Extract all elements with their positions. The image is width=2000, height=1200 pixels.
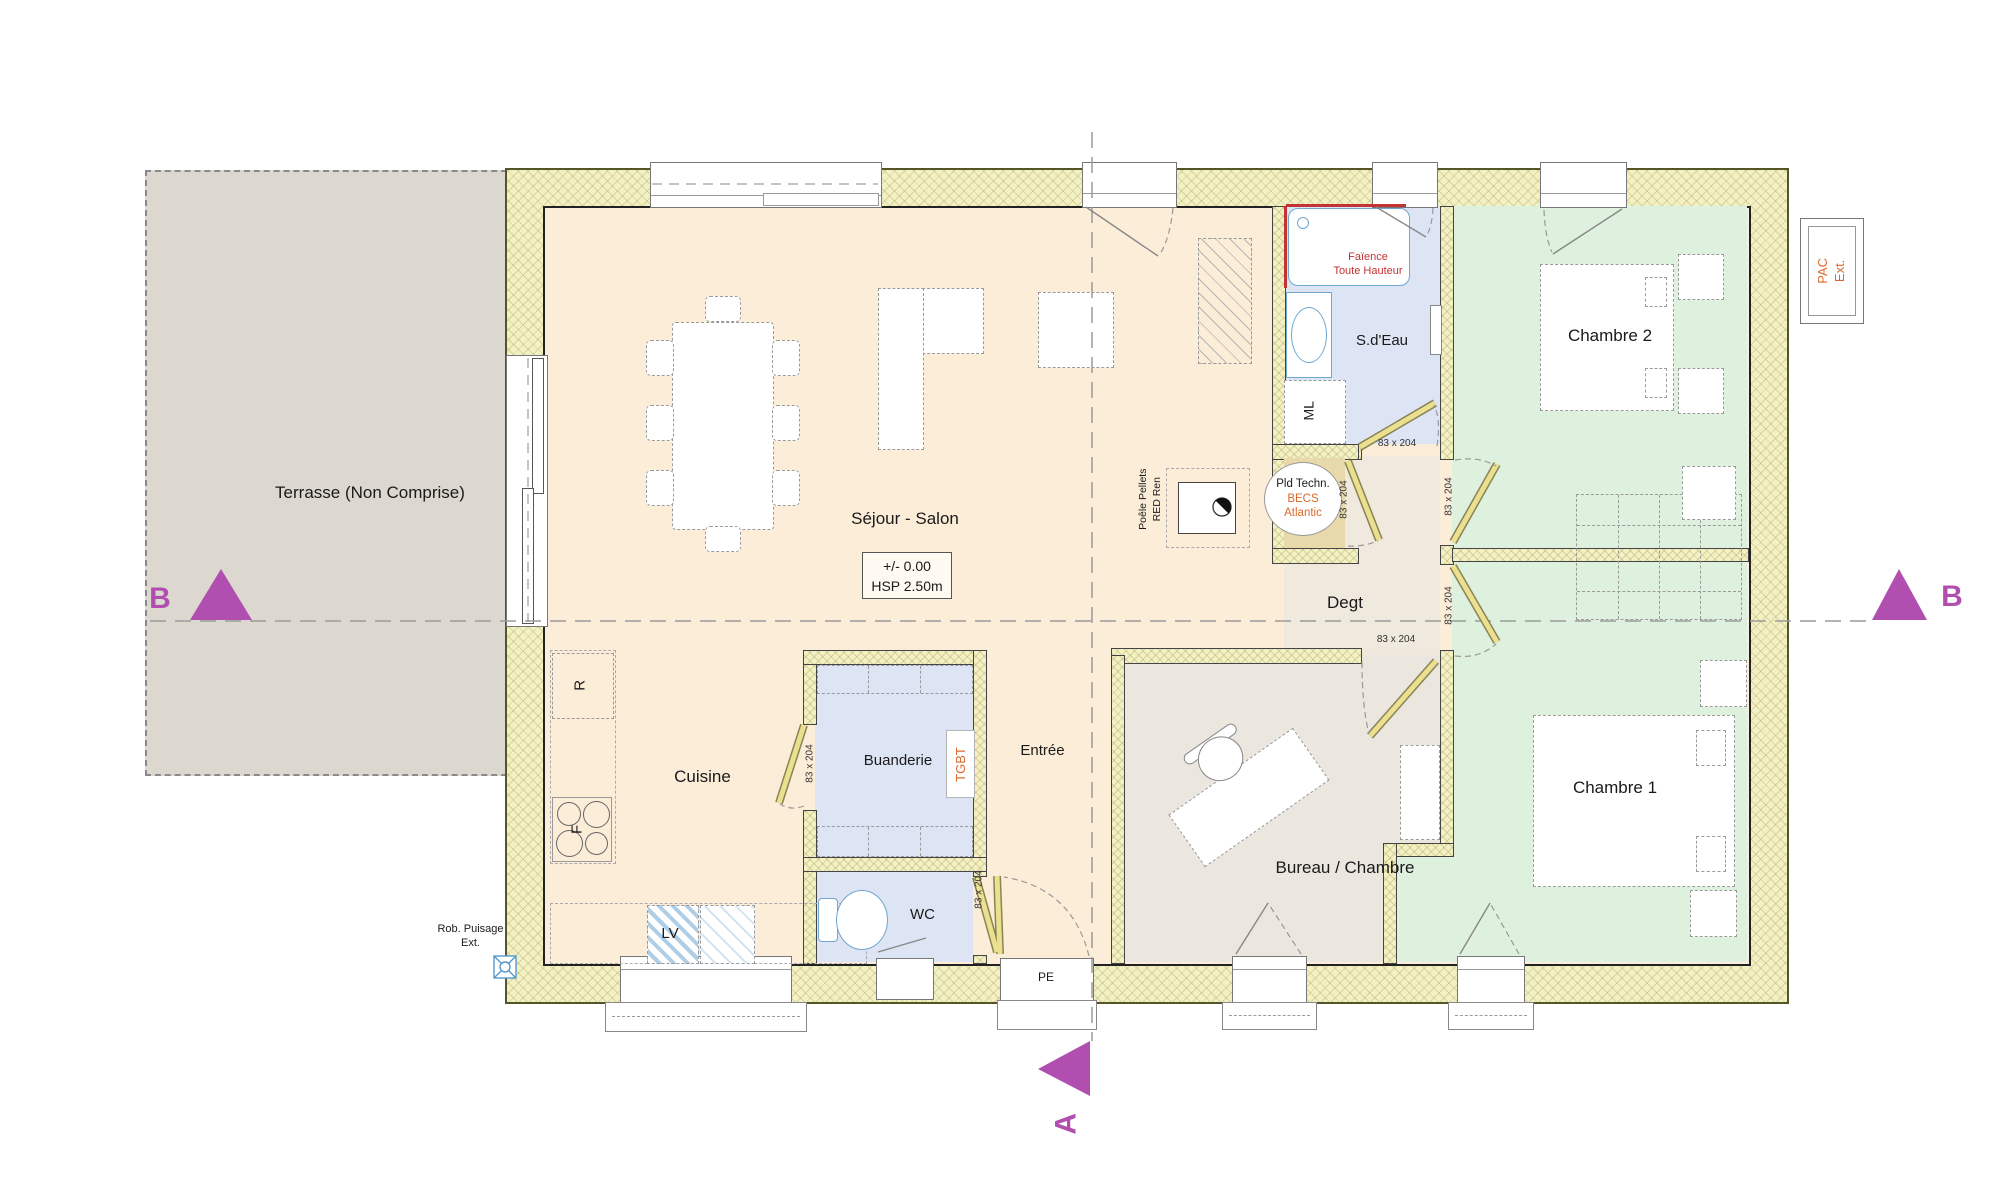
sofa-vertical bbox=[878, 288, 924, 450]
room-label-chambre2: Chambre 2 bbox=[1520, 325, 1700, 346]
stove-note-2: RED Ren bbox=[1150, 444, 1164, 554]
washer-label: ML bbox=[1300, 381, 1318, 441]
toilet-tank bbox=[818, 898, 838, 942]
room-label-degt: Degt bbox=[1290, 592, 1400, 613]
tiling-note: Faïence Toute Hauteur bbox=[1312, 250, 1424, 279]
outdoor-tap-note: Rob. Puisage Ext. bbox=[418, 922, 523, 951]
water-heater: Pld Techn. BECS Atlantic bbox=[1264, 462, 1342, 536]
bed-chambre1 bbox=[1533, 715, 1735, 887]
nightstand-chambre2-bottom bbox=[1678, 368, 1724, 414]
door-sejour-north bbox=[1082, 162, 1177, 208]
elevation-level: +/- 0.00 bbox=[863, 556, 951, 576]
tiling-strip-top bbox=[1286, 204, 1406, 207]
room-label-cuisine: Cuisine bbox=[630, 766, 775, 787]
wall-buanderie-top bbox=[803, 650, 987, 665]
tiling-strip-left bbox=[1284, 206, 1287, 288]
water-heater-brand2: Atlantic bbox=[1284, 506, 1322, 521]
room-label-bureau: Bureau / Chambre bbox=[1235, 857, 1455, 878]
window-bureau-south bbox=[1232, 956, 1307, 1004]
entry-door-label: PE bbox=[1016, 970, 1076, 985]
door-size-buanderie: 83 x 204 bbox=[805, 732, 816, 796]
tiling-note-1: Faïence bbox=[1312, 250, 1424, 264]
pellet-stove bbox=[1178, 482, 1236, 534]
heat-pump-label-2: Ext. bbox=[1832, 258, 1849, 284]
terrace-area bbox=[145, 170, 517, 776]
dining-chair bbox=[646, 340, 674, 376]
room-label-sdeau: S.d'Eau bbox=[1322, 332, 1442, 351]
kitchen-sink bbox=[700, 905, 755, 964]
nightstand-chambre1 bbox=[1700, 660, 1747, 707]
section-letter-b-right: B bbox=[1932, 578, 1972, 616]
window-chambre1-south bbox=[1457, 956, 1525, 1004]
door-size-chambre1: 83 x 204 bbox=[1444, 574, 1455, 638]
window-sejour-north bbox=[650, 162, 882, 208]
floor-plan: TGBT Pld Techn. BECS Atlantic PAC Ext. +… bbox=[0, 0, 2000, 1200]
elevation-box: +/- 0.00 HSP 2.50m bbox=[862, 552, 952, 599]
section-marker-b-right bbox=[1872, 569, 1927, 620]
armchair bbox=[1038, 292, 1114, 368]
tiling-note-2: Toute Hauteur bbox=[1312, 264, 1424, 278]
dresser-chambre2 bbox=[1682, 466, 1736, 520]
wall-bedrooms-3 bbox=[1440, 650, 1454, 845]
dining-chair bbox=[646, 470, 674, 506]
door-size-bureau: 83 x 204 bbox=[1364, 634, 1428, 645]
section-letter-a: A bbox=[1047, 1104, 1085, 1144]
stove-note: Poêle Pellets RED Ren bbox=[1136, 444, 1164, 554]
fridge-label: R bbox=[572, 655, 591, 715]
wall-tech-bottom bbox=[1272, 548, 1359, 564]
oven-label: F bbox=[569, 799, 588, 859]
heat-pump-box: PAC Ext. bbox=[1800, 218, 1864, 324]
window-sdeau-north bbox=[1372, 162, 1438, 208]
toilet-bowl bbox=[836, 890, 888, 950]
porch-entree bbox=[997, 1000, 1097, 1030]
door-size-chambre2: 83 x 204 bbox=[1444, 465, 1455, 529]
wall-degt-bureau bbox=[1111, 648, 1362, 664]
laundry-shelf-bottom bbox=[817, 826, 973, 857]
wall-wc-right-stub bbox=[973, 955, 987, 964]
window-wc-south bbox=[876, 958, 934, 1000]
window-chambre2-north bbox=[1540, 162, 1627, 208]
dining-chair bbox=[646, 405, 674, 441]
water-heater-brand1: BECS bbox=[1287, 492, 1318, 507]
room-label-buanderie: Buanderie bbox=[818, 752, 978, 771]
dining-chair bbox=[772, 340, 800, 376]
room-label-wc: WC bbox=[895, 906, 950, 925]
dining-chair bbox=[705, 526, 741, 552]
room-label-chambre1: Chambre 1 bbox=[1525, 777, 1705, 798]
dining-table bbox=[672, 322, 774, 530]
tech-room-title: Pld Techn. bbox=[1276, 477, 1330, 492]
door-size-tech: 83 x 204 bbox=[1339, 468, 1350, 532]
elevation-ceiling: HSP 2.50m bbox=[863, 576, 951, 596]
outdoor-tap-note-1: Rob. Puisage bbox=[418, 922, 523, 936]
wall-entree-bureau bbox=[1111, 655, 1125, 964]
door-size-wc: 83 x 204 bbox=[974, 858, 985, 922]
dining-chair bbox=[772, 405, 800, 441]
section-letter-b-left: B bbox=[140, 580, 180, 618]
dining-chair bbox=[705, 296, 741, 322]
dining-chair bbox=[772, 470, 800, 506]
stove-note-1: Poêle Pellets bbox=[1136, 444, 1150, 554]
outdoor-tap-note-2: Ext. bbox=[418, 936, 523, 950]
sill-bureau bbox=[1222, 1002, 1317, 1030]
wall-buanderie-wc bbox=[803, 857, 987, 872]
room-label-entree: Entrée bbox=[980, 742, 1105, 761]
sill-cuisine bbox=[605, 1002, 807, 1032]
room-label-sejour: Séjour - Salon bbox=[810, 508, 1000, 529]
wall-bedrooms-1 bbox=[1440, 206, 1454, 460]
nightstand-chambre2-top bbox=[1678, 254, 1724, 300]
dishwasher-label: LV bbox=[640, 925, 700, 944]
laundry-shelf-top bbox=[817, 665, 973, 694]
heat-pump-label-1: PAC bbox=[1815, 258, 1832, 284]
door-size-sdeau: 83 x 204 bbox=[1365, 438, 1429, 449]
chest-chambre1 bbox=[1690, 890, 1737, 937]
bureau-shelf bbox=[1400, 745, 1440, 840]
terrace-label: Terrasse (Non Comprise) bbox=[200, 482, 540, 503]
bay-leaf-2 bbox=[522, 488, 534, 624]
section-marker-a bbox=[1038, 1041, 1090, 1096]
tv-cabinet bbox=[1198, 238, 1252, 364]
bay-leaf-1 bbox=[532, 358, 544, 494]
sill-chambre1 bbox=[1448, 1002, 1534, 1030]
